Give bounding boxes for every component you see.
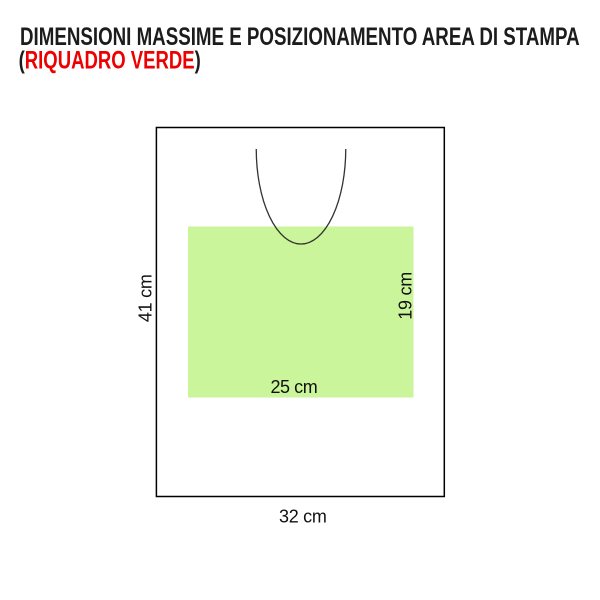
svg-text:41 cm: 41 cm	[136, 274, 156, 322]
svg-text:25 cm: 25 cm	[271, 377, 318, 397]
svg-text:32 cm: 32 cm	[279, 506, 327, 526]
svg-text:(RIQUADRO VERDE): (RIQUADRO VERDE)	[19, 46, 201, 74]
svg-text:19 cm: 19 cm	[396, 272, 416, 320]
